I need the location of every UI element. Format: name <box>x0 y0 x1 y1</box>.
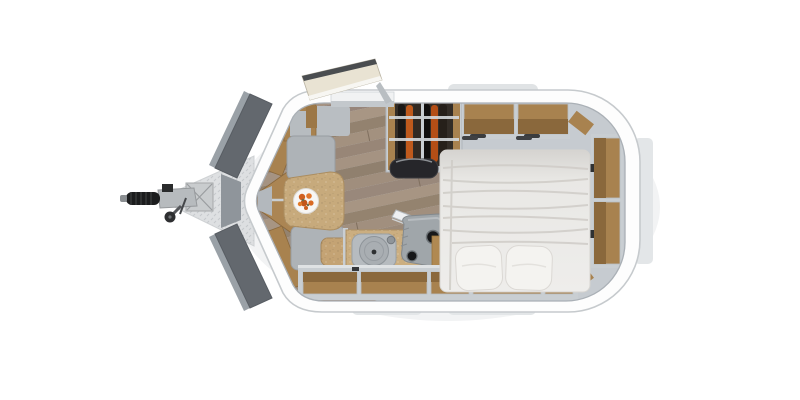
latch <box>590 230 594 238</box>
nose-joint-panel <box>221 174 241 228</box>
duffel-bag <box>390 159 438 178</box>
pillow-right <box>505 245 553 291</box>
drain <box>372 250 377 255</box>
entry-mat <box>314 106 350 136</box>
latch <box>352 267 359 271</box>
wardrobe-divider <box>421 102 424 166</box>
jockey-hub <box>168 215 171 218</box>
shelf-handle <box>462 136 478 140</box>
coupler-latch <box>162 184 173 192</box>
bed <box>440 136 590 292</box>
overhead-cabinets-top <box>462 102 570 139</box>
sink <box>352 234 396 268</box>
caravan-floorplan-render <box>0 0 800 400</box>
latch <box>590 164 594 172</box>
door-threshold <box>331 101 394 107</box>
shelf-handle <box>516 136 532 140</box>
faucet <box>387 236 395 244</box>
pillow-left <box>455 245 503 291</box>
handle-tip <box>120 195 127 202</box>
burner-small <box>407 251 417 261</box>
floorplan-canvas <box>0 0 800 400</box>
